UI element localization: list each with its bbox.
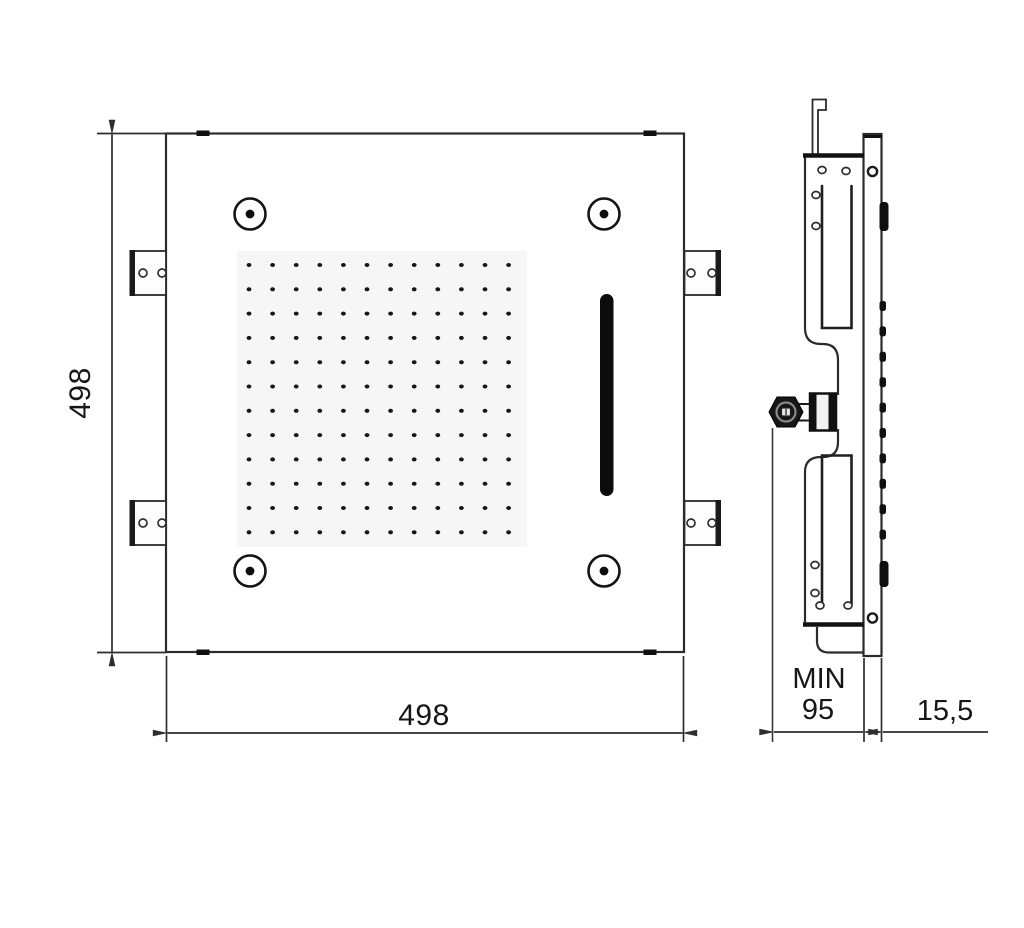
nozzle-dot bbox=[435, 530, 440, 534]
face-plate bbox=[864, 134, 882, 656]
plate-screw-top bbox=[868, 167, 877, 176]
nozzle-dot bbox=[435, 482, 440, 486]
nozzle-dot bbox=[270, 409, 275, 413]
nozzle-dot bbox=[506, 506, 511, 510]
nozzle-dot bbox=[388, 457, 393, 461]
nozzle-dot bbox=[459, 385, 464, 389]
nozzle-dot bbox=[506, 263, 511, 267]
frame-hole bbox=[812, 192, 820, 199]
nozzle-dot bbox=[341, 409, 346, 413]
nozzle-dot bbox=[435, 312, 440, 316]
nozzle-dot bbox=[294, 385, 299, 389]
nozzle-dot bbox=[341, 360, 346, 364]
nozzle-dot bbox=[388, 409, 393, 413]
mounting-bracket-left-lower bbox=[130, 500, 167, 546]
edge-clip-bottom-right bbox=[644, 650, 657, 656]
side-nozzle-nub bbox=[880, 301, 887, 311]
nozzle-dot bbox=[412, 457, 417, 461]
nozzle-dot bbox=[459, 263, 464, 267]
nozzle-dot bbox=[365, 287, 370, 291]
nozzle-dot bbox=[270, 433, 275, 437]
waterfall-slot bbox=[600, 294, 614, 496]
nozzle-dot bbox=[412, 360, 417, 364]
nozzle-dot bbox=[365, 506, 370, 510]
nozzle-dot bbox=[341, 482, 346, 486]
nozzle-dot bbox=[483, 433, 488, 437]
nozzle-dot bbox=[459, 530, 464, 534]
frame-slot-upper bbox=[822, 186, 852, 328]
nozzle-dot bbox=[388, 287, 393, 291]
nozzle-dot bbox=[270, 336, 275, 340]
nozzle-dot bbox=[317, 336, 322, 340]
nozzle-dot bbox=[388, 482, 393, 486]
nozzle-dot bbox=[435, 336, 440, 340]
nozzle-dot bbox=[365, 482, 370, 486]
nozzle-dot bbox=[483, 385, 488, 389]
nozzle-dot bbox=[341, 433, 346, 437]
nozzle-dot bbox=[247, 482, 252, 486]
drawing-canvas: 498 498 bbox=[0, 0, 1024, 928]
nozzle-dot bbox=[317, 263, 322, 267]
side-nozzle-nub bbox=[880, 326, 887, 336]
plate-screw-bottom bbox=[868, 613, 877, 622]
corner-screw bbox=[589, 199, 620, 230]
recess-depth-label-95: 95 bbox=[802, 694, 834, 726]
bracket-edge bbox=[130, 500, 136, 546]
frame-hole bbox=[844, 602, 852, 609]
nozzle-dot bbox=[341, 287, 346, 291]
nozzle-dot bbox=[435, 506, 440, 510]
nozzle-dot bbox=[459, 360, 464, 364]
nozzle-dot bbox=[294, 336, 299, 340]
nozzle-dot bbox=[412, 530, 417, 534]
nozzle-dot bbox=[341, 312, 346, 316]
bracket-hole bbox=[139, 519, 147, 527]
nozzle-dot bbox=[388, 312, 393, 316]
frame-hole bbox=[812, 223, 820, 230]
side-screw-tab-bottom bbox=[880, 561, 889, 587]
nozzle-dot bbox=[412, 287, 417, 291]
nozzle-dot bbox=[341, 457, 346, 461]
nozzle-dot bbox=[412, 433, 417, 437]
nozzle-dot bbox=[459, 287, 464, 291]
mounting-bracket-right-upper bbox=[685, 250, 722, 296]
nozzle-dot bbox=[506, 360, 511, 364]
nozzle-dot bbox=[247, 287, 252, 291]
nozzle-dot bbox=[506, 385, 511, 389]
nozzle-dot bbox=[412, 482, 417, 486]
nozzle-dot bbox=[247, 409, 252, 413]
nozzle-dot bbox=[483, 287, 488, 291]
nozzle-dot bbox=[341, 530, 346, 534]
nozzle-dot bbox=[388, 336, 393, 340]
nozzle-dot bbox=[435, 457, 440, 461]
nozzle-dot bbox=[435, 409, 440, 413]
nozzle-dot bbox=[294, 312, 299, 316]
union-nut-facet bbox=[810, 394, 817, 431]
nozzle-dot bbox=[412, 312, 417, 316]
bracket-hole bbox=[708, 519, 716, 527]
nozzle-dot bbox=[294, 409, 299, 413]
side-nozzle-nub bbox=[880, 352, 887, 362]
nozzle-dot bbox=[317, 530, 322, 534]
nozzle-dot bbox=[459, 506, 464, 510]
nozzle-dot bbox=[435, 287, 440, 291]
corner-screw bbox=[235, 199, 266, 230]
edge-clip-top-right bbox=[644, 131, 657, 137]
frame-bottom-lip bbox=[817, 627, 863, 653]
nozzle-dot bbox=[388, 506, 393, 510]
nozzle-dot bbox=[317, 409, 322, 413]
side-nozzle-nub bbox=[880, 479, 887, 489]
technical-drawing: 498 498 bbox=[0, 0, 1024, 928]
nozzle-dot bbox=[459, 433, 464, 437]
nozzle-dot bbox=[317, 312, 322, 316]
nozzle-dot bbox=[247, 385, 252, 389]
nozzle-dot bbox=[388, 385, 393, 389]
side-screw-tab-top bbox=[880, 202, 889, 231]
nozzle-dot bbox=[294, 482, 299, 486]
nozzle-dot bbox=[365, 360, 370, 364]
nozzle-dot bbox=[365, 457, 370, 461]
nozzle-dot bbox=[247, 457, 252, 461]
height-dim-label: 498 bbox=[64, 367, 97, 419]
bracket-hole bbox=[687, 269, 695, 277]
nozzle-dot bbox=[294, 433, 299, 437]
nozzle-dot bbox=[247, 530, 252, 534]
frame-hole bbox=[811, 590, 819, 597]
nozzle-dot bbox=[435, 433, 440, 437]
nozzle-dot bbox=[341, 263, 346, 267]
side-dimensions: MIN 95 15,5 bbox=[774, 658, 988, 742]
nozzle-dot bbox=[247, 360, 252, 364]
bracket-hole bbox=[158, 269, 166, 277]
nozzle-dot bbox=[459, 457, 464, 461]
bracket-edge bbox=[130, 250, 136, 296]
nozzle-dot bbox=[483, 360, 488, 364]
nozzle-dot bbox=[317, 457, 322, 461]
nozzle-dot bbox=[270, 312, 275, 316]
front-view bbox=[130, 131, 722, 656]
side-nozzle-nub bbox=[880, 530, 887, 540]
nozzle-dot bbox=[483, 409, 488, 413]
nozzle-dot bbox=[341, 506, 346, 510]
side-nozzle-nub bbox=[880, 377, 887, 387]
nozzle-dot bbox=[294, 506, 299, 510]
nozzle-dot bbox=[412, 385, 417, 389]
frame-hole bbox=[816, 602, 824, 609]
nozzle-dot bbox=[294, 457, 299, 461]
nozzle-dot bbox=[317, 360, 322, 364]
nozzle-dot bbox=[317, 385, 322, 389]
nozzle-dot bbox=[412, 336, 417, 340]
edge-clip-top-left bbox=[197, 131, 210, 137]
nozzle-dot bbox=[294, 360, 299, 364]
mounting-bracket-left-upper bbox=[130, 250, 167, 296]
nozzle-dot bbox=[294, 530, 299, 534]
nozzle-dot bbox=[365, 530, 370, 534]
nozzle-dot bbox=[483, 457, 488, 461]
nozzle-dot bbox=[388, 433, 393, 437]
nozzle-dot bbox=[506, 287, 511, 291]
side-nozzle-nub bbox=[880, 428, 887, 438]
corner-screw bbox=[589, 556, 620, 587]
nozzle-dot bbox=[270, 506, 275, 510]
nozzle-dot bbox=[365, 385, 370, 389]
side-nozzle-nub bbox=[880, 453, 887, 463]
nozzle-dot bbox=[506, 530, 511, 534]
bracket-hole bbox=[158, 519, 166, 527]
nozzle-dot bbox=[365, 433, 370, 437]
frame-hole bbox=[811, 562, 819, 569]
hanging-hook bbox=[813, 100, 827, 157]
nozzle-dot bbox=[506, 312, 511, 316]
nozzle-dot bbox=[435, 263, 440, 267]
plate-thickness-label: 15,5 bbox=[917, 695, 973, 727]
corner-screw bbox=[235, 556, 266, 587]
bracket-hole bbox=[139, 269, 147, 277]
nozzle-dot bbox=[270, 287, 275, 291]
nozzle-dot bbox=[247, 312, 252, 316]
nozzle-dot bbox=[270, 530, 275, 534]
nozzle-dot bbox=[270, 482, 275, 486]
nozzle-dot bbox=[270, 360, 275, 364]
nozzle-dot bbox=[506, 457, 511, 461]
nozzle-dot bbox=[247, 506, 252, 510]
nozzle-dot bbox=[412, 506, 417, 510]
nozzle-dot bbox=[294, 287, 299, 291]
nozzle-dot bbox=[459, 482, 464, 486]
nozzle-dot bbox=[412, 409, 417, 413]
nozzle-dot bbox=[483, 336, 488, 340]
frame-slot-lower bbox=[822, 456, 852, 605]
nozzle-dot bbox=[459, 312, 464, 316]
bracket-hole bbox=[687, 519, 695, 527]
side-nozzle-nub bbox=[880, 504, 887, 514]
nozzle-dot bbox=[341, 336, 346, 340]
nozzle-dot bbox=[483, 263, 488, 267]
nozzle-dot bbox=[483, 530, 488, 534]
nozzle-dot bbox=[435, 360, 440, 364]
frame-hole bbox=[818, 167, 826, 174]
nozzle-dot bbox=[247, 336, 252, 340]
nozzle-dot bbox=[483, 506, 488, 510]
bracket-hole bbox=[708, 269, 716, 277]
nozzle-dot bbox=[506, 409, 511, 413]
nozzle-dot bbox=[365, 336, 370, 340]
nozzle-dot bbox=[412, 263, 417, 267]
nozzle-dot bbox=[270, 263, 275, 267]
frame-hole bbox=[842, 168, 850, 175]
nozzle-dot bbox=[388, 530, 393, 534]
nozzle-dot bbox=[341, 385, 346, 389]
nozzle-dot bbox=[365, 263, 370, 267]
nozzle-dot bbox=[506, 336, 511, 340]
nozzle-dot bbox=[459, 336, 464, 340]
nozzle-dot bbox=[483, 482, 488, 486]
nozzle-dot bbox=[247, 433, 252, 437]
width-dim-label: 498 bbox=[398, 699, 450, 732]
nozzle-dot bbox=[365, 312, 370, 316]
nozzle-dot bbox=[506, 482, 511, 486]
union-nut-facet bbox=[829, 394, 837, 431]
nozzle-area-wash bbox=[237, 251, 527, 547]
nozzle-dot bbox=[270, 457, 275, 461]
nozzle-dot bbox=[483, 312, 488, 316]
mounting-bracket-right-lower bbox=[685, 500, 722, 546]
edge-clip-bottom-left bbox=[197, 650, 210, 656]
side-nozzle-nub bbox=[880, 403, 887, 413]
nozzle-dot bbox=[270, 385, 275, 389]
nozzle-dot bbox=[388, 360, 393, 364]
nozzle-dot bbox=[317, 433, 322, 437]
side-view bbox=[769, 100, 889, 743]
recess-depth-label-min: MIN bbox=[792, 663, 845, 695]
nozzle-dot bbox=[435, 385, 440, 389]
nozzle-dot bbox=[388, 263, 393, 267]
nozzle-dot bbox=[294, 263, 299, 267]
nozzle-dot bbox=[459, 409, 464, 413]
nozzle-dot bbox=[365, 409, 370, 413]
nozzle-dot bbox=[506, 433, 511, 437]
nozzle-dot bbox=[317, 506, 322, 510]
nozzle-dot bbox=[247, 263, 252, 267]
nozzle-dot bbox=[317, 287, 322, 291]
nozzle-dot bbox=[317, 482, 322, 486]
